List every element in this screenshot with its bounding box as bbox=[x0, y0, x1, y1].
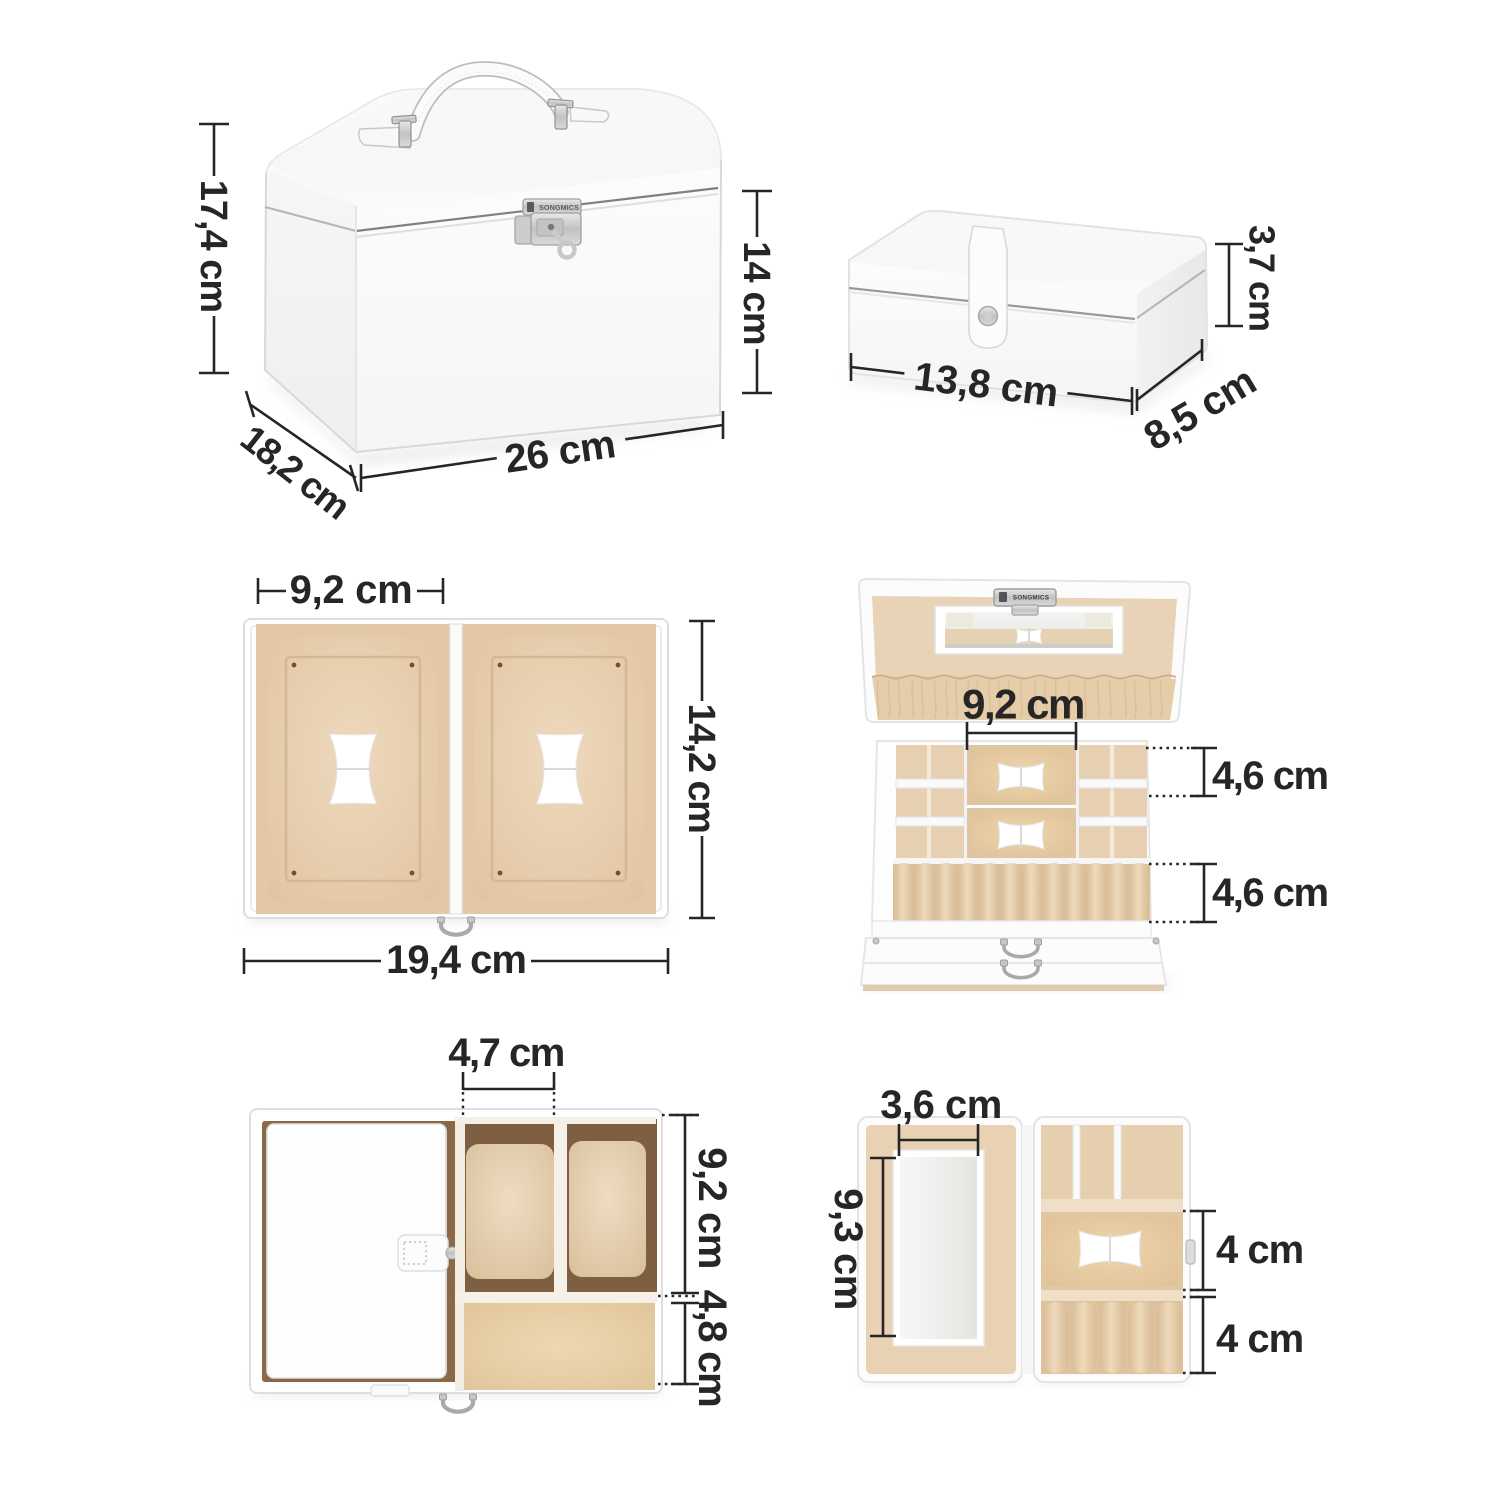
svg-text:3,6 cm: 3,6 cm bbox=[880, 1083, 1002, 1127]
svg-text:9,3 cm: 9,3 cm bbox=[826, 1188, 870, 1310]
svg-text:4 cm: 4 cm bbox=[1216, 1228, 1303, 1272]
svg-text:4,8 cm: 4,8 cm bbox=[690, 1290, 734, 1407]
svg-text:4,6 cm: 4,6 cm bbox=[1212, 871, 1328, 915]
svg-text:9,2 cm: 9,2 cm bbox=[962, 681, 1084, 728]
svg-text:14 cm: 14 cm bbox=[735, 241, 777, 345]
svg-text:4,7 cm: 4,7 cm bbox=[448, 1031, 564, 1075]
svg-text:9,2 cm: 9,2 cm bbox=[690, 1147, 734, 1269]
svg-text:4 cm: 4 cm bbox=[1216, 1317, 1303, 1361]
svg-text:9,2 cm: 9,2 cm bbox=[290, 568, 413, 612]
svg-text:14,2 cm: 14,2 cm bbox=[680, 704, 722, 833]
svg-text:19,4 cm: 19,4 cm bbox=[386, 938, 526, 982]
svg-text:SONGMICS: SONGMICS bbox=[539, 203, 579, 212]
svg-text:3,7 cm: 3,7 cm bbox=[1242, 225, 1283, 331]
svg-text:SONGMICS: SONGMICS bbox=[1013, 595, 1050, 602]
svg-text:4,6 cm: 4,6 cm bbox=[1212, 754, 1328, 798]
svg-text:17,4 cm: 17,4 cm bbox=[192, 180, 234, 312]
